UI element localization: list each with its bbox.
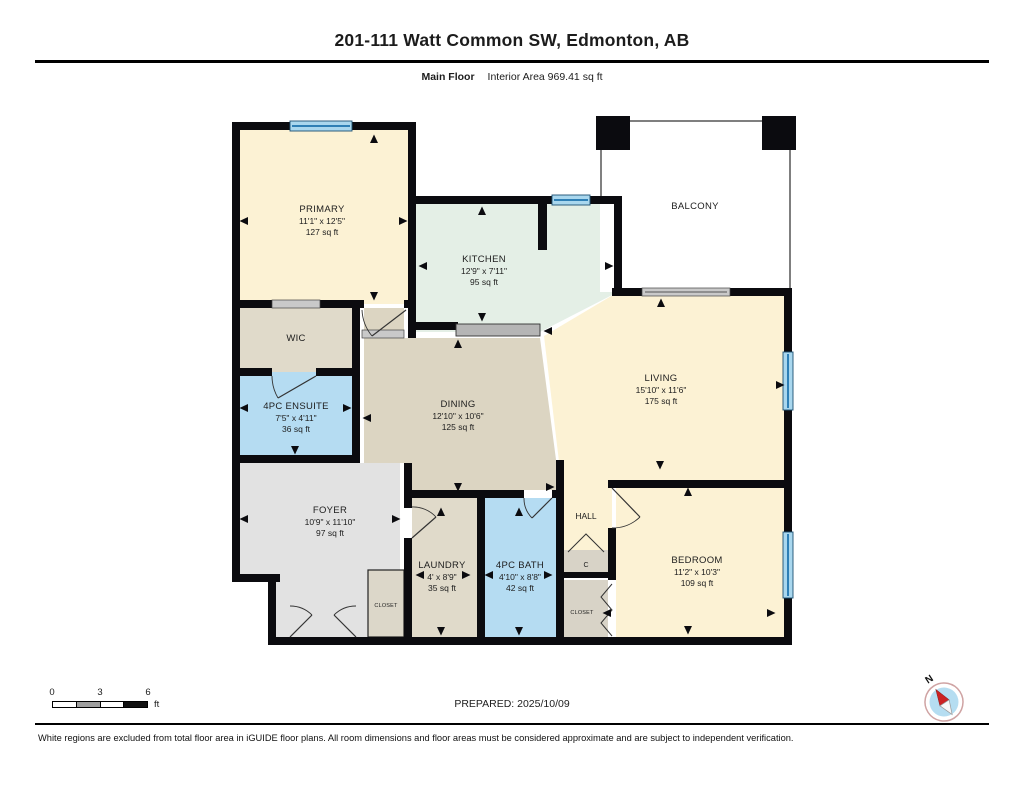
closet-bedroom-fill: [564, 580, 608, 637]
kitchen-counter: [456, 324, 540, 336]
label-ensuite-area: 36 sq ft: [282, 424, 311, 434]
floorplan-page: 201-111 Watt Common SW, Edmonton, AB Mai…: [0, 0, 1024, 791]
label-laundry-name: LAUNDRY: [418, 560, 466, 571]
scale-tick-0: 0: [49, 687, 54, 698]
label-laundry-dims: 4' x 8'9": [427, 572, 456, 582]
label-kitchen-dims: 12'9" x 7'11": [461, 266, 507, 276]
label-closet-bedroom: CLOSET: [570, 610, 594, 616]
prepared-date: PREPARED: 2025/10/09: [0, 698, 1024, 710]
window-primary: [290, 121, 352, 131]
label-bedroom-name: BEDROOM: [671, 555, 722, 566]
label-foyer-dims: 10'9" x 11'10": [305, 517, 356, 527]
label-primary-dims: 11'1" x 12'5": [299, 216, 345, 226]
compass-north-label: N: [924, 673, 936, 686]
scale-tick-3: 3: [97, 687, 102, 698]
label-living-area: 175 sq ft: [645, 396, 678, 406]
footer-divider: [35, 723, 989, 725]
disclaimer-text: White regions are excluded from total fl…: [38, 733, 794, 743]
label-kitchen-area: 95 sq ft: [470, 277, 499, 287]
label-kitchen-name: KITCHEN: [462, 254, 506, 265]
floorplan-drawing: PRIMARY 11'1" x 12'5" 127 sq ft WIC 4PC …: [0, 0, 1024, 791]
label-ensuite-name: 4PC ENSUITE: [263, 401, 329, 412]
label-hall: HALL: [575, 511, 597, 521]
compass-icon: N: [916, 664, 972, 732]
label-closet-c: C: [583, 562, 588, 569]
label-dining-dims: 12'10" x 10'6": [432, 411, 483, 421]
label-primary-area: 127 sq ft: [306, 227, 339, 237]
label-bedroom-area: 109 sq ft: [681, 578, 714, 588]
label-primary-name: PRIMARY: [299, 204, 345, 215]
label-bath-area: 42 sq ft: [506, 583, 535, 593]
label-foyer-name: FOYER: [313, 505, 347, 516]
room-primary: [236, 126, 412, 304]
label-bedroom-dims: 11'2" x 10'3": [674, 567, 720, 577]
label-ensuite-dims: 7'5" x 4'11": [275, 413, 316, 423]
window-kitchen: [552, 195, 590, 205]
label-dining-area: 125 sq ft: [442, 422, 475, 432]
label-living-dims: 15'10" x 11'6": [636, 385, 687, 395]
label-bath-name: 4PC BATH: [496, 560, 544, 571]
label-laundry-area: 35 sq ft: [428, 583, 457, 593]
label-closet-foyer: CLOSET: [374, 603, 398, 609]
label-bath-dims: 4'10" x 8'8": [499, 572, 541, 582]
label-foyer-area: 97 sq ft: [316, 528, 345, 538]
label-wic: WIC: [286, 333, 305, 344]
window-living: [783, 352, 793, 410]
scale-tick-6: 6: [145, 687, 150, 698]
label-dining-name: DINING: [440, 399, 475, 410]
label-living-name: LIVING: [645, 373, 678, 384]
sliding-door-balcony: [642, 288, 730, 296]
window-bedroom: [783, 532, 793, 598]
label-balcony: BALCONY: [671, 201, 719, 212]
opening-sill: [272, 300, 320, 308]
